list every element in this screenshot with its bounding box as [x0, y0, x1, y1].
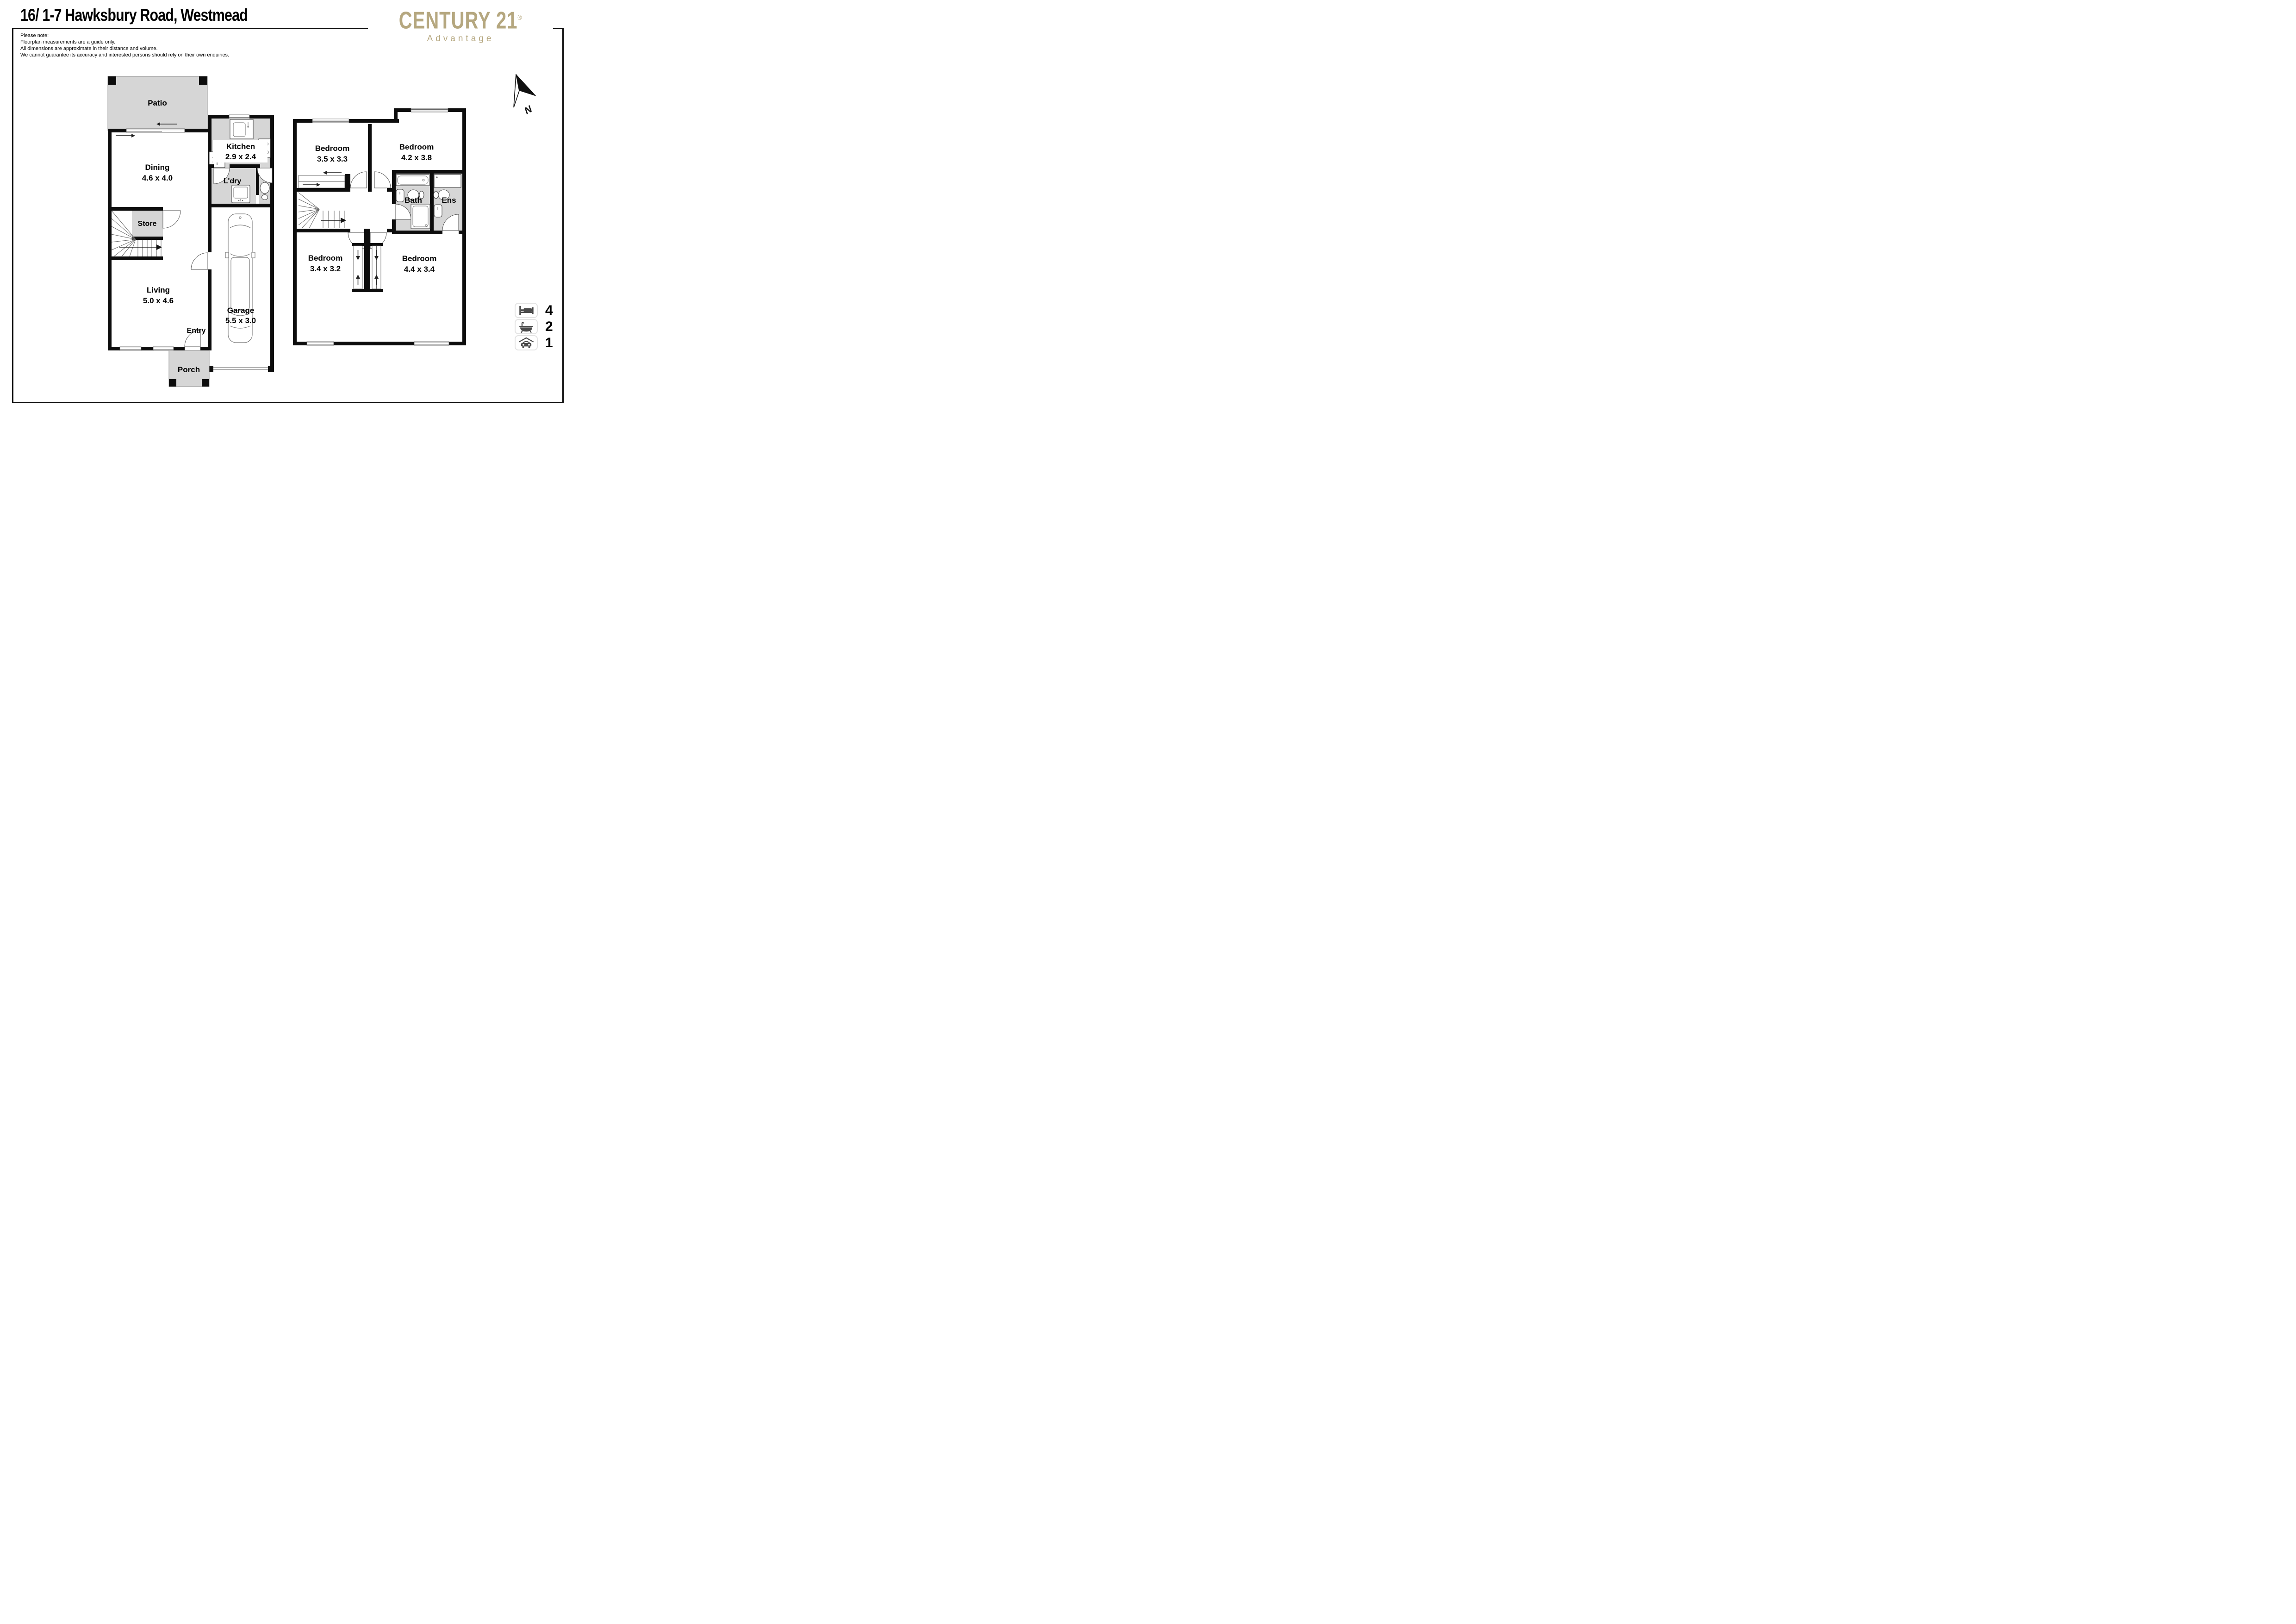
room-dims-bedroom3: 3.4 x 3.2 [310, 264, 341, 273]
bedroom-count: 4 [545, 303, 553, 318]
bedroom2-door [374, 172, 391, 188]
north-arrow-icon: N [514, 74, 536, 117]
bedroom1-window [312, 119, 349, 123]
room-dims-dining: 4.6 x 4.0 [142, 174, 173, 182]
room-label-dining: Dining [145, 163, 170, 172]
living-window [153, 347, 174, 350]
room-label-bedroom1: Bedroom [315, 144, 350, 153]
garage-door [213, 368, 268, 369]
room-label-kitchen: Kitchen [226, 142, 255, 151]
summary-cars: 1 [515, 335, 553, 350]
room-label-store: Store [138, 220, 157, 228]
summary-bathrooms: 2 [515, 319, 553, 334]
store-door [163, 211, 180, 228]
first-right-wall [462, 108, 466, 345]
floorplan-page: 16/ 1-7 Hawksbury Road, Westmead Please … [0, 0, 574, 406]
ground-right-wall [270, 115, 274, 372]
ens-toilet [434, 191, 438, 199]
patio-post [199, 76, 207, 85]
room-label-porch: Porch [178, 365, 200, 374]
first-stairs [299, 193, 346, 228]
floorplan-drawing: Patio Kitchen 2.9 x 2.4 Dining 4.6 x 4.0… [0, 0, 574, 406]
first-floor-plan: Bedroom 3.5 x 3.3 Bedroom 4.2 x 3.8 Bath… [293, 108, 466, 345]
ens-vanity [434, 175, 461, 187]
bathtub-icon [515, 319, 538, 334]
room-dims-bedroom2: 4.2 x 3.8 [401, 153, 432, 162]
bath-sink [396, 189, 404, 202]
room-dims-living: 5.0 x 4.6 [143, 296, 174, 305]
porch-post [202, 379, 209, 387]
toilet [260, 182, 269, 194]
bed-icon [515, 303, 538, 318]
car-garage-icon [515, 335, 538, 350]
room-label-ens: Ens [442, 196, 456, 205]
living-window [120, 347, 141, 350]
century21-tagline: Advantage [368, 34, 553, 44]
kitchen-window [229, 115, 249, 119]
room-label-bedroom3: Bedroom [308, 254, 343, 262]
bedroom1-door [350, 172, 367, 188]
room-label-laundry: L'dry [224, 177, 242, 185]
patio-post [108, 76, 116, 85]
room-label-living: Living [147, 286, 170, 294]
room-label-patio: Patio [148, 99, 167, 107]
ground-left-wall [108, 129, 112, 350]
ground-floor-plan: Patio Kitchen 2.9 x 2.4 Dining 4.6 x 4.0… [108, 76, 274, 387]
bedroom2-window [411, 108, 448, 112]
century21-logo: CENTURY 21® Advantage [368, 7, 553, 45]
bedroom4-robe [370, 243, 383, 292]
garage-internal-door [191, 253, 208, 269]
bedroom1-robe [299, 171, 350, 190]
room-dims-bedroom1: 3.5 x 3.3 [317, 155, 348, 163]
bedroom4-window [414, 342, 449, 345]
room-label-garage: Garage [227, 306, 255, 315]
room-dims-bedroom4: 4.4 x 3.4 [404, 265, 435, 274]
bedroom3-window [307, 342, 334, 345]
car-count: 1 [545, 335, 553, 350]
room-label-bedroom4: Bedroom [402, 254, 437, 263]
sliding-door [126, 129, 185, 132]
bedroom3-robe [352, 243, 364, 292]
summary-bedrooms: 4 [515, 303, 553, 318]
room-label-bedroom2: Bedroom [399, 143, 434, 151]
room-label-entry: Entry [187, 327, 206, 335]
room-dims-garage: 5.5 x 3.0 [225, 316, 256, 325]
porch-post [169, 379, 176, 387]
bathroom-count: 2 [545, 319, 553, 334]
brand-name: CENTURY 21 [399, 7, 518, 34]
ens-sink [434, 205, 442, 217]
room-label-bath: Bath [404, 196, 422, 205]
room-dims-kitchen: 2.9 x 2.4 [225, 152, 256, 161]
century21-wordmark: CENTURY 21® [399, 7, 523, 35]
registered-mark: ® [517, 13, 522, 22]
north-label: N [523, 104, 534, 117]
